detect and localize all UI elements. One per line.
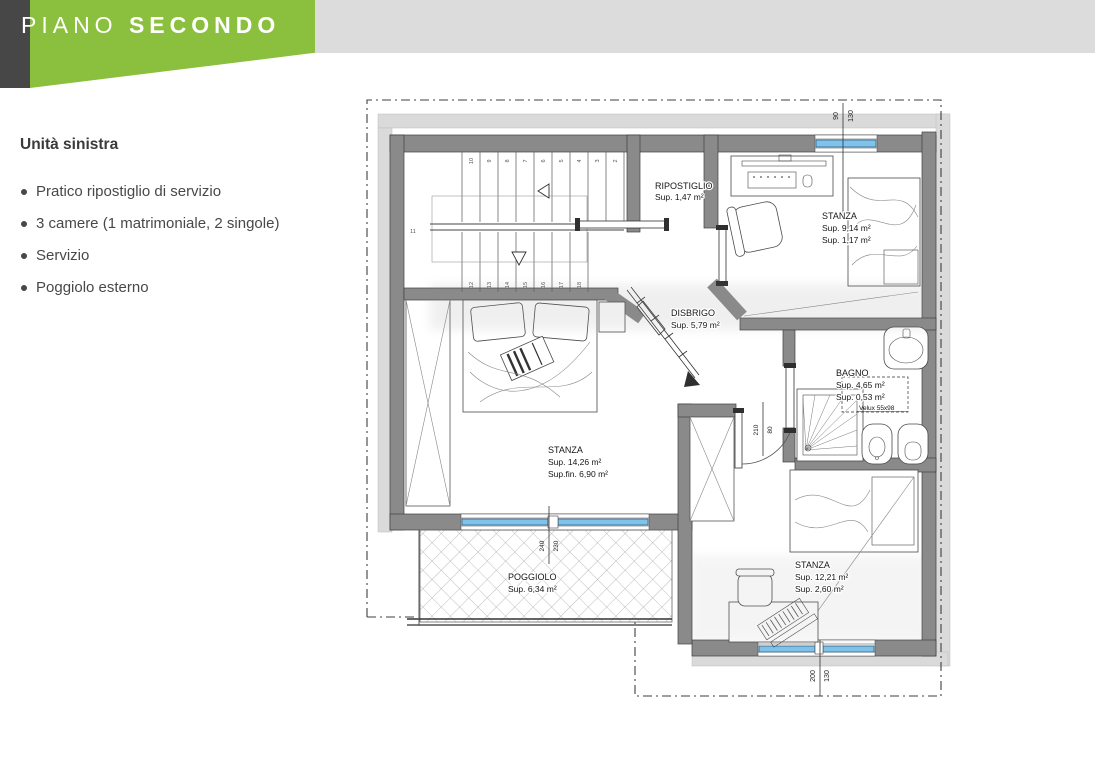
- single-bed-south: [790, 470, 918, 552]
- floor-title: PIANO SECONDO: [21, 12, 280, 39]
- feature-item: Servizio: [20, 245, 279, 277]
- svg-text:STANZA: STANZA: [822, 211, 857, 221]
- svg-text:STANZA: STANZA: [548, 445, 583, 455]
- wardrobe-corridor: [690, 417, 734, 521]
- svg-text:5: 5: [559, 159, 565, 162]
- svg-text:4: 4: [577, 159, 583, 162]
- svg-text:6: 6: [541, 159, 547, 162]
- svg-text:Sup. 5,79 m²: Sup. 5,79 m²: [671, 320, 720, 330]
- feature-list: Pratico ripostiglio di servizio 3 camere…: [20, 181, 279, 309]
- sink: [884, 327, 928, 369]
- chair-north: [726, 198, 784, 257]
- svg-text:Sup. 12,21 m²: Sup. 12,21 m²: [795, 572, 849, 582]
- svg-text:200: 200: [810, 670, 817, 682]
- bidet: [862, 424, 892, 464]
- svg-text:130: 130: [848, 110, 855, 122]
- svg-text:8: 8: [505, 159, 511, 162]
- svg-text:10: 10: [469, 158, 475, 164]
- svg-text:7: 7: [523, 159, 529, 162]
- svg-text:BAGNO: BAGNO: [836, 368, 869, 378]
- svg-text:230: 230: [553, 540, 560, 551]
- svg-text:Sup. 2,60 m²: Sup. 2,60 m²: [795, 584, 844, 594]
- svg-text:Sup.fin. 6,90 m²: Sup.fin. 6,90 m²: [548, 469, 608, 479]
- svg-text:210: 210: [753, 424, 760, 435]
- toilet: [898, 424, 928, 464]
- svg-text:11: 11: [410, 229, 416, 235]
- svg-text:90: 90: [833, 112, 840, 120]
- door-bathroom: [784, 363, 796, 433]
- window-top: [815, 135, 877, 152]
- svg-text:130: 130: [824, 670, 831, 682]
- svg-text:Sup. 6,34 m²: Sup. 6,34 m²: [508, 584, 557, 594]
- svg-text:2: 2: [613, 159, 619, 162]
- room-label-stanza-matrimoniale: STANZA Sup. 14,26 m² Sup.fin. 6,90 m²: [548, 445, 608, 479]
- svg-text:RIPOSTIGLIO: RIPOSTIGLIO: [655, 181, 713, 191]
- floor-title-light: PIANO: [21, 12, 118, 38]
- svg-text:Sup. 9,14 m²: Sup. 9,14 m²: [822, 223, 871, 233]
- unit-title: Unità sinistra: [20, 136, 118, 154]
- svg-text:Sup. 4,65 m²: Sup. 4,65 m²: [836, 380, 885, 390]
- svg-text:STANZA: STANZA: [795, 560, 830, 570]
- feature-item: Pratico ripostiglio di servizio: [20, 181, 279, 213]
- wardrobe-main: [406, 300, 450, 506]
- svg-text:Sup. 1,17 m²: Sup. 1,17 m²: [822, 235, 871, 245]
- svg-text:Sup. 0,53 m²: Sup. 0,53 m²: [836, 392, 885, 402]
- floor-title-bold: SECONDO: [129, 12, 280, 38]
- door-bedroom-north: [716, 225, 728, 286]
- svg-text:3: 3: [595, 159, 601, 162]
- svg-text:Sup. 14,26 m²: Sup. 14,26 m²: [548, 457, 602, 467]
- dimension-door: 210 80: [753, 402, 774, 456]
- svg-text:DISBRIGO: DISBRIGO: [671, 308, 715, 318]
- svg-text:240: 240: [539, 540, 546, 551]
- feature-item: 3 camere (1 matrimoniale, 2 singole): [20, 213, 279, 245]
- svg-text:80: 80: [767, 426, 774, 434]
- window-bedroom: [461, 514, 649, 530]
- page: { "header": { "brand_light": "PIANO", "b…: [0, 0, 1095, 769]
- window-bottom: [758, 640, 875, 656]
- svg-text:9: 9: [487, 159, 493, 162]
- floor-plan: 10 9 8 7 6 5 4 3 2 11 12 13 14 15 16 17 …: [360, 90, 960, 715]
- svg-text:Sup. 1,47 m²: Sup. 1,47 m²: [655, 192, 704, 202]
- feature-item: Poggiolo esterno: [20, 277, 279, 309]
- desk-north: [731, 155, 833, 196]
- svg-text:Velux 55x98: Velux 55x98: [859, 405, 895, 412]
- svg-text:POGGIOLO: POGGIOLO: [508, 572, 557, 582]
